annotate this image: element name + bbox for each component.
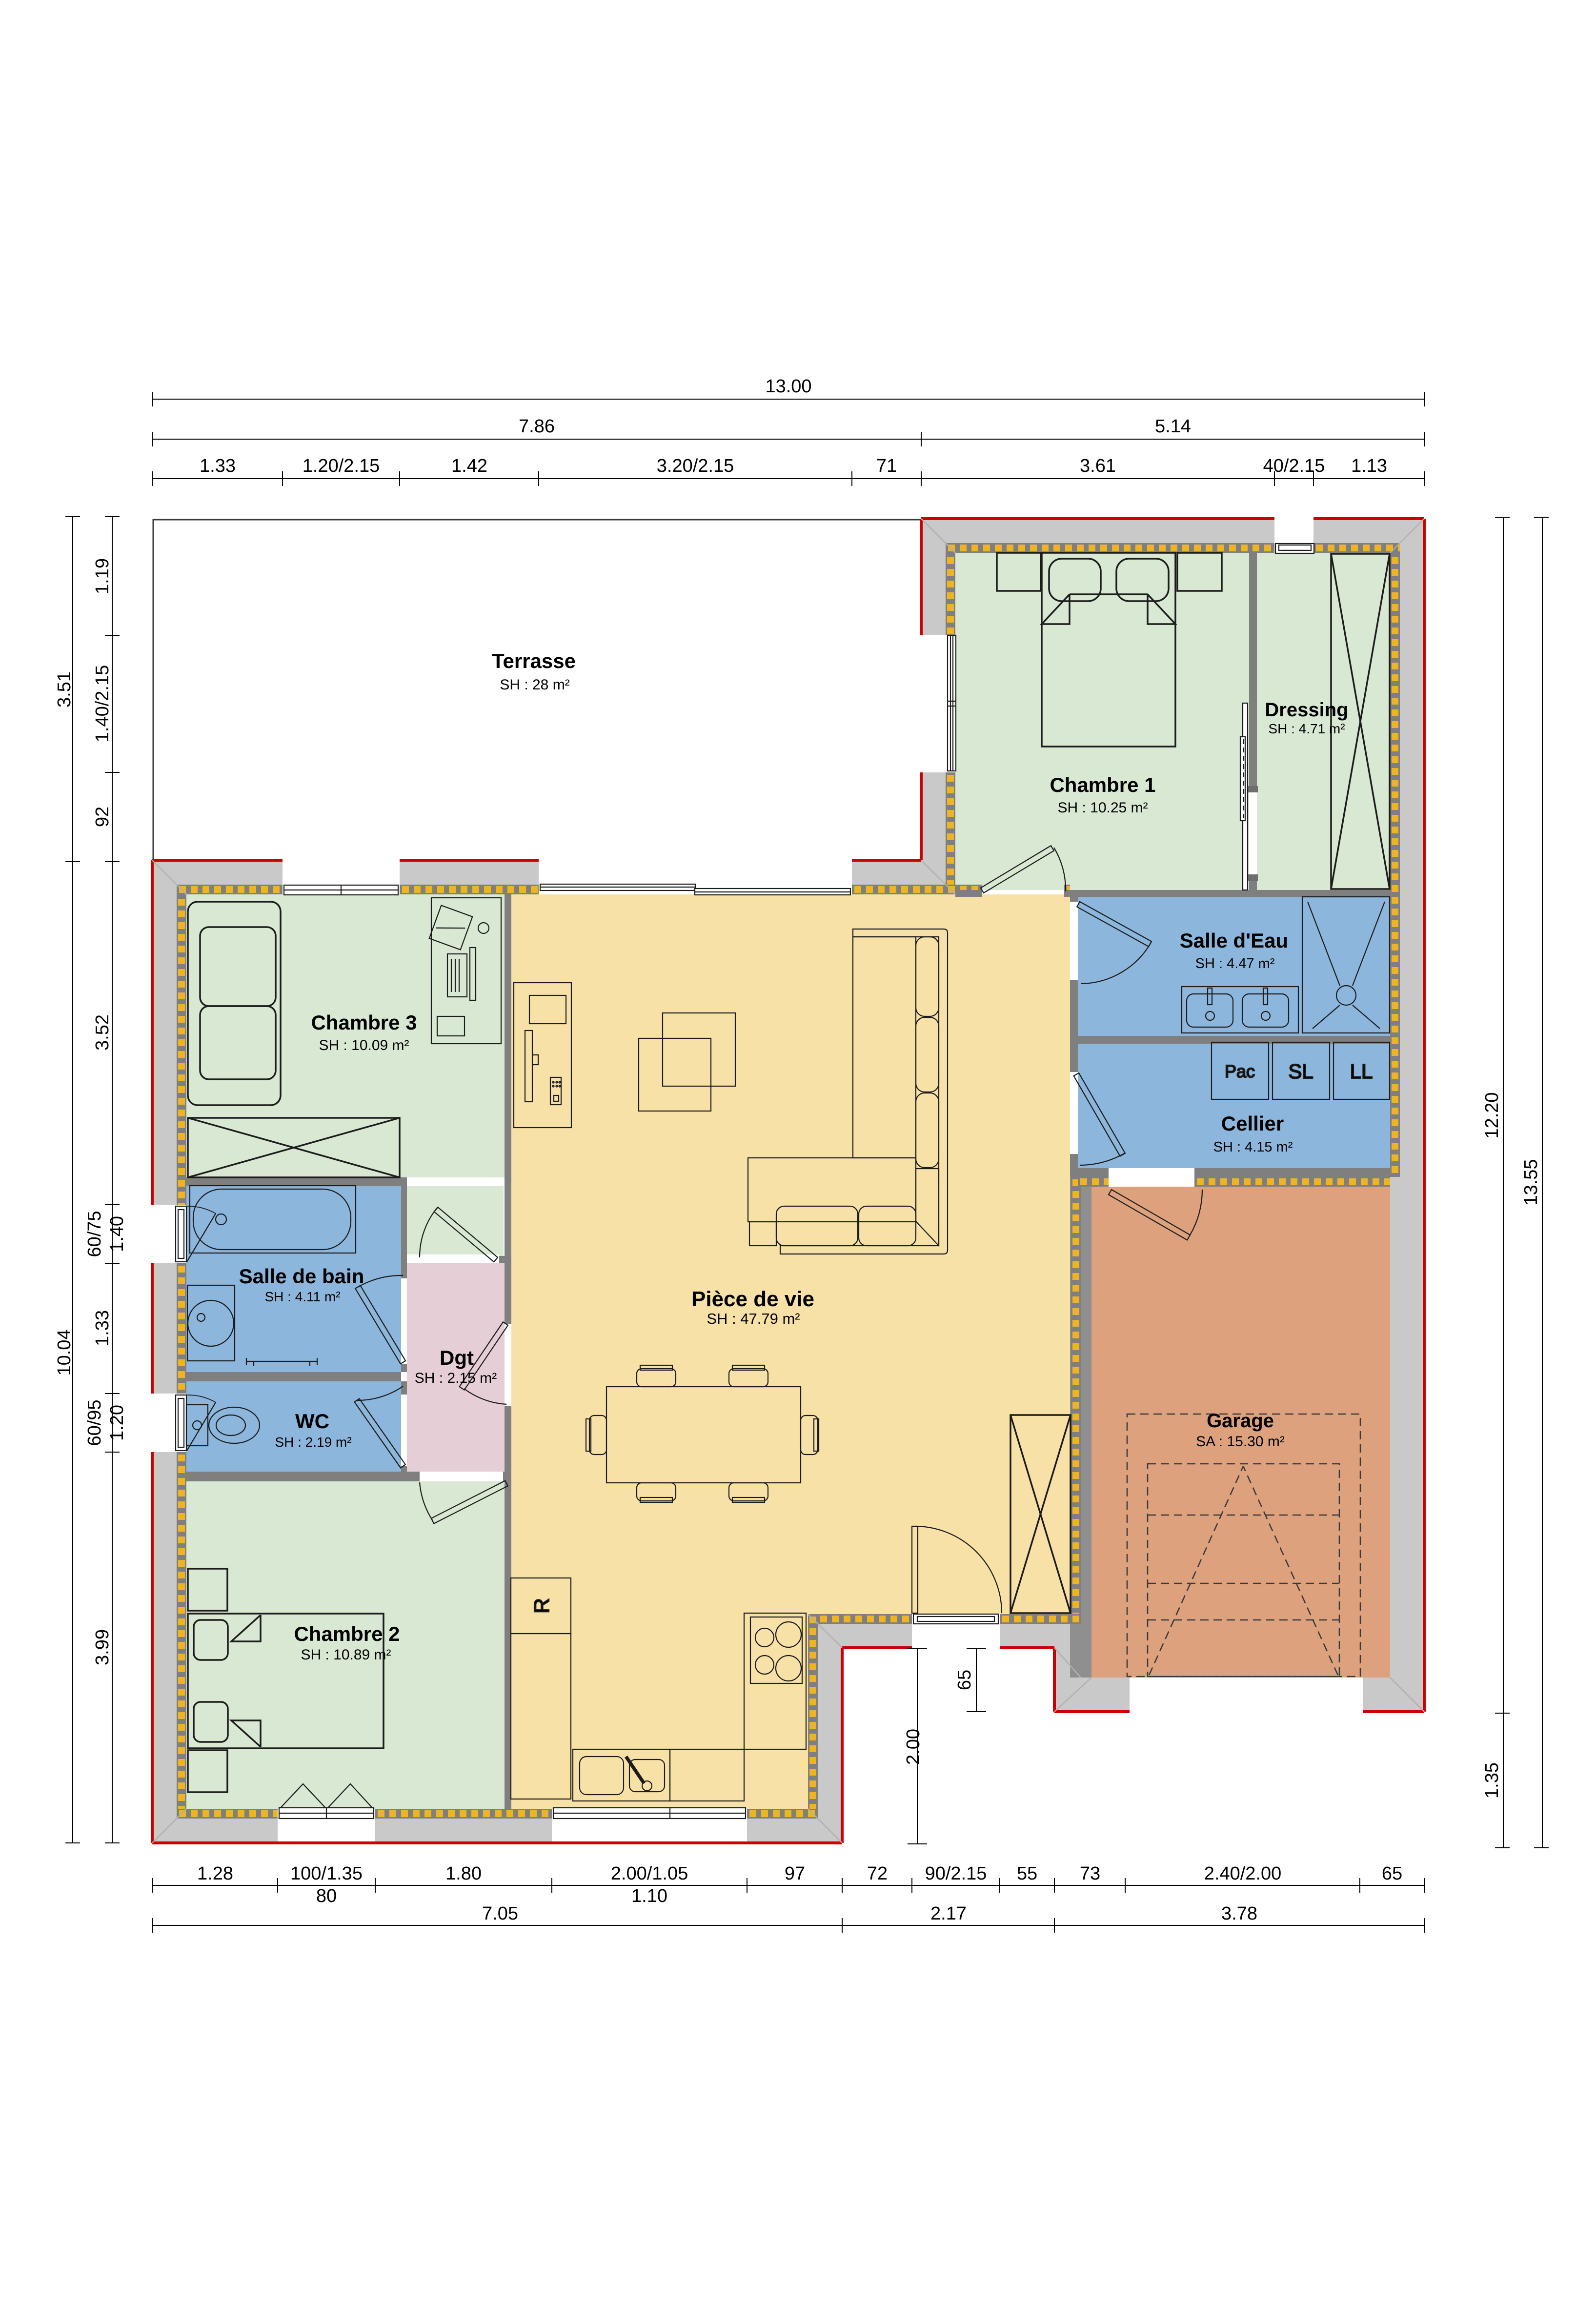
- svg-text:60/75: 60/75: [84, 1211, 105, 1257]
- svg-text:Pièce de vie: Pièce de vie: [691, 1287, 814, 1311]
- svg-text:2.17: 2.17: [930, 1903, 967, 1924]
- svg-text:13.55: 13.55: [1521, 1159, 1541, 1205]
- svg-text:65: 65: [1382, 1863, 1402, 1884]
- svg-text:Dgt: Dgt: [440, 1346, 474, 1369]
- svg-text:1.10: 1.10: [631, 1886, 667, 1906]
- svg-text:2.40/2.00: 2.40/2.00: [1204, 1863, 1281, 1884]
- svg-text:SH : 47.79 m²: SH : 47.79 m²: [707, 1310, 800, 1327]
- svg-text:Pac: Pac: [1225, 1061, 1255, 1081]
- svg-text:90/2.15: 90/2.15: [925, 1863, 987, 1884]
- svg-text:92: 92: [92, 807, 113, 827]
- svg-text:SL: SL: [1288, 1060, 1313, 1083]
- svg-text:Dressing: Dressing: [1265, 699, 1348, 721]
- svg-text:3.20/2.15: 3.20/2.15: [657, 456, 734, 476]
- svg-text:1.42: 1.42: [451, 456, 487, 476]
- svg-text:13.00: 13.00: [765, 376, 811, 397]
- svg-text:R: R: [530, 1598, 554, 1614]
- svg-text:Cellier: Cellier: [1221, 1112, 1284, 1135]
- svg-text:40/2.15: 40/2.15: [1263, 456, 1325, 476]
- svg-text:Chambre 2: Chambre 2: [294, 1622, 400, 1645]
- svg-text:73: 73: [1080, 1863, 1100, 1884]
- svg-text:1.28: 1.28: [197, 1863, 233, 1884]
- svg-text:5.14: 5.14: [1155, 416, 1191, 437]
- svg-text:7.05: 7.05: [482, 1903, 518, 1924]
- svg-text:3.78: 3.78: [1221, 1903, 1257, 1924]
- svg-text:97: 97: [785, 1863, 805, 1884]
- svg-text:1.20: 1.20: [107, 1405, 127, 1441]
- svg-text:1.33: 1.33: [92, 1310, 113, 1346]
- svg-text:WC: WC: [295, 1410, 329, 1433]
- svg-text:SH : 4.71 m²: SH : 4.71 m²: [1268, 721, 1345, 736]
- svg-text:7.86: 7.86: [519, 416, 555, 437]
- svg-text:2.00/1.05: 2.00/1.05: [611, 1863, 688, 1884]
- svg-text:SH : 2.19 m²: SH : 2.19 m²: [275, 1435, 351, 1450]
- svg-text:10.04: 10.04: [54, 1329, 75, 1375]
- svg-text:3.99: 3.99: [92, 1629, 113, 1665]
- svg-text:SH : 4.11 m²: SH : 4.11 m²: [264, 1289, 340, 1304]
- svg-text:1.80: 1.80: [445, 1863, 482, 1884]
- svg-text:Garage: Garage: [1207, 1410, 1274, 1432]
- svg-text:3.51: 3.51: [54, 671, 75, 708]
- svg-text:65: 65: [954, 1670, 975, 1690]
- svg-text:3.61: 3.61: [1080, 456, 1116, 476]
- svg-text:SH : 4.15 m²: SH : 4.15 m²: [1213, 1139, 1293, 1155]
- svg-text:60/95: 60/95: [84, 1399, 105, 1446]
- svg-text:2.00: 2.00: [903, 1729, 924, 1765]
- svg-text:1.40: 1.40: [107, 1216, 127, 1252]
- svg-text:Terrasse: Terrasse: [492, 649, 576, 672]
- svg-text:SA : 15.30 m²: SA : 15.30 m²: [1196, 1434, 1285, 1450]
- svg-text:1.20/2.15: 1.20/2.15: [303, 456, 380, 476]
- svg-text:3.52: 3.52: [92, 1014, 113, 1051]
- svg-text:Chambre 3: Chambre 3: [311, 1011, 417, 1034]
- svg-text:SH : 10.09 m²: SH : 10.09 m²: [319, 1037, 409, 1053]
- svg-text:SH : 10.25 m²: SH : 10.25 m²: [1057, 800, 1148, 816]
- svg-text:SH : 10.89 m²: SH : 10.89 m²: [301, 1647, 391, 1663]
- svg-text:80: 80: [316, 1886, 337, 1906]
- svg-text:12.20: 12.20: [1482, 1092, 1502, 1138]
- svg-text:1.33: 1.33: [200, 456, 236, 476]
- svg-text:LL: LL: [1350, 1060, 1373, 1083]
- svg-text:100/1.35: 100/1.35: [290, 1863, 363, 1884]
- svg-text:SH : 28 m²: SH : 28 m²: [500, 677, 569, 693]
- svg-text:SH : 2.15 m²: SH : 2.15 m²: [415, 1370, 497, 1386]
- svg-text:1.35: 1.35: [1482, 1762, 1502, 1799]
- svg-text:SH : 4.47 m²: SH : 4.47 m²: [1195, 956, 1275, 971]
- svg-text:72: 72: [867, 1863, 888, 1884]
- svg-text:Salle d'Eau: Salle d'Eau: [1180, 929, 1288, 952]
- svg-text:1.13: 1.13: [1351, 456, 1387, 476]
- svg-text:Chambre 1: Chambre 1: [1050, 773, 1155, 796]
- svg-text:55: 55: [1017, 1863, 1037, 1884]
- svg-text:1.19: 1.19: [92, 558, 113, 594]
- svg-text:1.40/2.15: 1.40/2.15: [92, 665, 113, 742]
- svg-text:Salle de bain: Salle de bain: [239, 1265, 364, 1288]
- svg-text:71: 71: [876, 456, 897, 476]
